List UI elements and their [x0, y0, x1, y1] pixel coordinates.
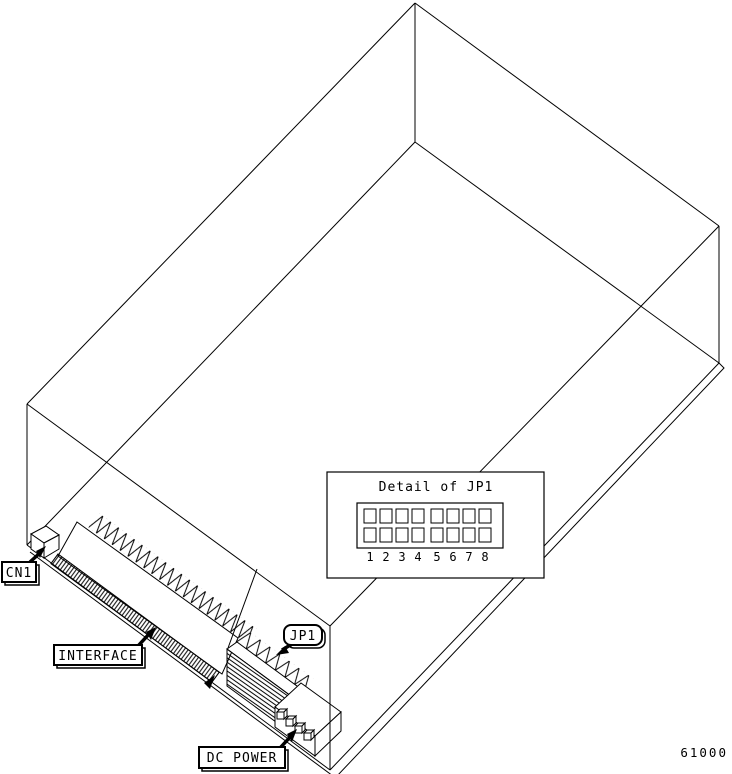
- cn1-connector: [31, 526, 59, 558]
- interface-label: INTERFACE: [58, 649, 137, 664]
- hardware-diagram: Detail of JP1 1 2 3 4 5 6 7 8 CN1: [0, 0, 732, 774]
- pin-number-5: 5: [433, 550, 440, 564]
- top-right-edge: [415, 3, 719, 226]
- label-cn1: CN1: [2, 546, 46, 585]
- detail-inset-title: Detail of JP1: [379, 480, 494, 495]
- part-number: 61000: [680, 745, 728, 760]
- pin-number-3: 3: [398, 550, 405, 564]
- jp1-label: JP1: [290, 629, 316, 644]
- cn1-label: CN1: [6, 566, 32, 581]
- label-jp1: JP1: [276, 625, 325, 655]
- pin-number-2: 2: [382, 550, 389, 564]
- label-dc-power: DC POWER: [199, 729, 297, 771]
- detail-inset: Detail of JP1 1 2 3 4 5 6 7 8: [327, 472, 544, 578]
- pin-number-6: 6: [449, 550, 456, 564]
- pin-number-4: 4: [414, 550, 421, 564]
- dc-power-label: DC POWER: [207, 751, 278, 766]
- pin-number-8: 8: [481, 550, 488, 564]
- pin-number-7: 7: [465, 550, 472, 564]
- pin-number-1: 1: [366, 550, 373, 564]
- label-interface: INTERFACE: [54, 627, 156, 668]
- back-bottom-right-edge: [415, 142, 719, 363]
